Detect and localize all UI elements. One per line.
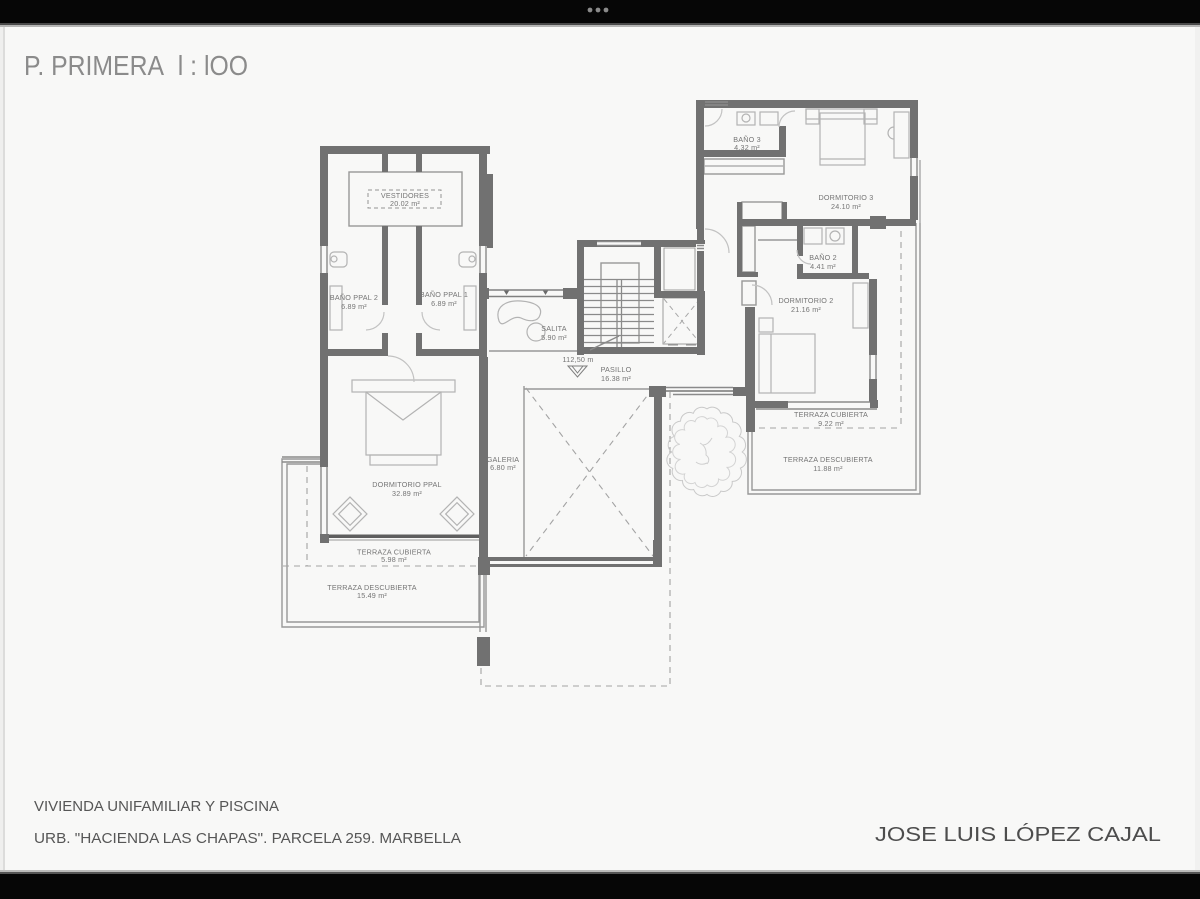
svg-text:4.41 m²: 4.41 m² — [810, 262, 836, 271]
svg-text:P. PRIMERA l : lOO: P. PRIMERA l : lOO — [24, 50, 248, 81]
svg-text:DORMITORIO PPAL: DORMITORIO PPAL — [372, 480, 441, 489]
svg-text:BAÑO 2: BAÑO 2 — [809, 253, 837, 262]
svg-text:20.02 m²: 20.02 m² — [390, 199, 420, 208]
svg-text:URB. "HACIENDA LAS CHAPAS". PA: URB. "HACIENDA LAS CHAPAS". PARCELA 259.… — [34, 830, 461, 847]
svg-text:6.89 m²: 6.89 m² — [341, 302, 367, 311]
svg-text:TERRAZA CUBIERTA: TERRAZA CUBIERTA — [794, 410, 868, 419]
svg-text:4.32 m²: 4.32 m² — [734, 143, 760, 152]
svg-text:5.90 m²: 5.90 m² — [541, 333, 567, 342]
svg-text:11.88 m²: 11.88 m² — [813, 464, 843, 473]
svg-text:DORMITORIO 2: DORMITORIO 2 — [779, 296, 834, 305]
svg-text:9.22 m²: 9.22 m² — [818, 419, 844, 428]
svg-text:VIVIENDA UNIFAMILIAR Y PISCINA: VIVIENDA UNIFAMILIAR Y PISCINA — [34, 798, 279, 815]
svg-text:112,50 m: 112,50 m — [562, 355, 593, 364]
svg-text:PASILLO: PASILLO — [601, 365, 632, 374]
svg-text:TERRAZA DESCUBIERTA: TERRAZA DESCUBIERTA — [783, 455, 872, 464]
svg-text:5.98 m²: 5.98 m² — [381, 555, 407, 564]
svg-text:BAÑO PPAL 2: BAÑO PPAL 2 — [330, 293, 378, 302]
svg-text:SALITA: SALITA — [541, 324, 566, 333]
svg-text:6.80 m²: 6.80 m² — [490, 463, 516, 472]
svg-text:21.16 m²: 21.16 m² — [791, 305, 821, 314]
svg-text:JOSE LUIS LÓPEZ CAJAL: JOSE LUIS LÓPEZ CAJAL — [875, 823, 1161, 846]
svg-text:6.89 m²: 6.89 m² — [431, 299, 457, 308]
svg-text:24.10 m²: 24.10 m² — [831, 202, 861, 211]
svg-text:BAÑO PPAL 1: BAÑO PPAL 1 — [420, 290, 468, 299]
svg-text:15.49 m²: 15.49 m² — [357, 591, 387, 600]
svg-text:16.38 m²: 16.38 m² — [601, 374, 631, 383]
svg-text:32.89 m²: 32.89 m² — [392, 489, 422, 498]
svg-text:DORMITORIO 3: DORMITORIO 3 — [819, 193, 874, 202]
